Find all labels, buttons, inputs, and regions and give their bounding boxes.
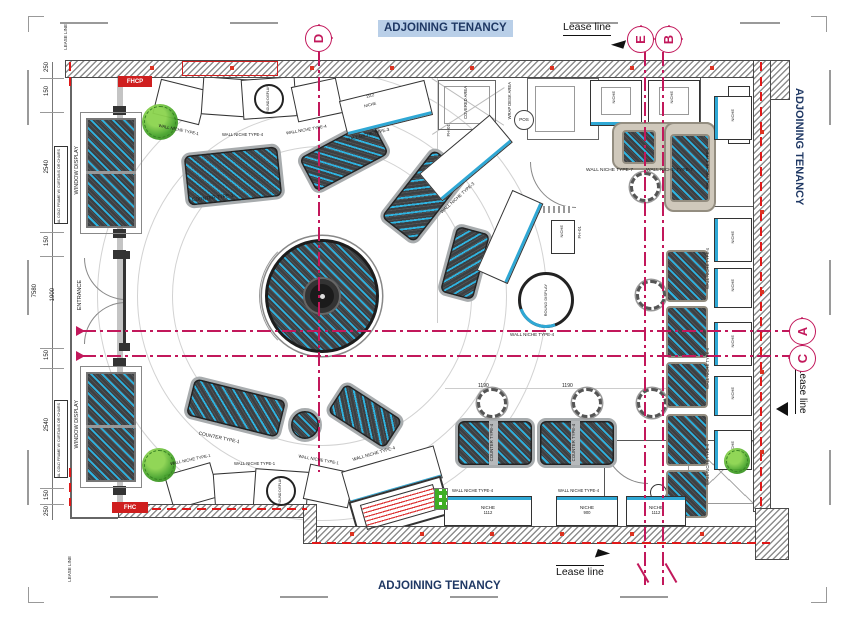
pos-circle: POS: [514, 110, 534, 130]
corner-mark: [826, 587, 827, 603]
niche-label: NICHE: [731, 231, 735, 243]
covered-area-label: COVERED AREA: [464, 86, 469, 119]
table-label: COUNTER TYPE-4: [490, 424, 495, 461]
grid-line-e: [644, 52, 646, 585]
wall-corner-block: [755, 508, 789, 560]
dim-entrance: 1900: [50, 288, 57, 301]
grid-line-c: [82, 355, 790, 357]
dim: 2540: [44, 160, 51, 173]
leader-arrow: [776, 402, 788, 416]
teal-panel: [666, 414, 708, 466]
entrance-door-arc: [84, 258, 126, 300]
round-display-niche: ROUND DISPLAY: [254, 84, 284, 114]
niche-label: NICHE: [670, 91, 674, 103]
adjoining-tenancy-bottom: ADJOINING TENANCY: [378, 580, 501, 593]
corner-mark: [826, 16, 827, 32]
tag-fh01: FH-01: [447, 124, 452, 137]
niche-caption: WALL NICHE TYPE-4: [706, 444, 711, 485]
niche-caption: WALL NICHE TYPE-4: [706, 348, 711, 389]
tenancy-boundary-dashes: [829, 70, 831, 550]
niche-label: NICHE: [560, 225, 564, 237]
metal-frame-note: METAL COLD FRAME W/ CURTAINS OR CHAIRS: [58, 403, 62, 478]
niche-caption: WALL NICHE TYPE-7: [646, 168, 693, 173]
dim: 1112: [652, 511, 661, 516]
wall-niche: NICHE: [714, 218, 752, 262]
leader-arrow: [611, 36, 626, 49]
round-display-label: ROUND DISPLAY: [267, 86, 271, 113]
corner-mark: [28, 602, 44, 603]
dim: 250: [44, 62, 51, 72]
corner-mark: [28, 587, 29, 603]
corner-mark: [811, 16, 827, 17]
metal-frame-note: METAL COLD FRAME W/ CURTAINS OR CHAIRS: [58, 149, 62, 224]
dim: 1190: [478, 384, 489, 390]
corner-mark: [28, 16, 44, 17]
wall-niche: NICHE 1112: [444, 496, 532, 526]
niche-caption: WALL NICHE TYPE-4: [706, 248, 711, 289]
wall-right: [753, 60, 771, 512]
niche-caption: WALL NICHE TYPE-1: [234, 462, 275, 467]
leader-arrow: [595, 549, 610, 562]
niche-label: NICHE: [731, 335, 735, 347]
center-display-pivot: [320, 294, 325, 299]
lease-line-bottom: Lease line: [556, 565, 604, 579]
fhc-marker: FHC: [112, 502, 148, 513]
round-stool-fixture: [288, 408, 322, 442]
grid-bubble-a: A: [789, 318, 816, 345]
round-display-label: ROUND DISPLAY: [279, 478, 283, 505]
entrance-label: ENTRANCE: [77, 280, 83, 310]
wall-niche: NICHE: [648, 80, 700, 126]
dim: 1190: [562, 384, 573, 390]
fhcp-marker: FHCP: [118, 76, 152, 87]
storefront-red-dash: [69, 468, 71, 506]
wrap-desk-label: WRAP DESK AREA: [508, 82, 513, 119]
niche-label: NICHE: [612, 91, 616, 103]
metal-frame-note-box: METAL COLD FRAME W/ CURTAINS OR CHAIRS: [54, 400, 68, 478]
teal-panel: [666, 250, 708, 302]
niche-caption: WALL NICHE TYPE-4: [222, 133, 263, 138]
tenancy-boundary-dashes: [27, 70, 29, 550]
niche-caption: WALL NICHE TYPE-4: [510, 333, 554, 338]
wall-red-dash: [760, 62, 762, 508]
lease-line-top-left: LEASE LINE: [64, 24, 69, 50]
teal-panel: [666, 362, 708, 408]
grid-bubble-d: D: [305, 25, 332, 52]
lease-line-bottom-left: LEASE LINE: [68, 556, 73, 582]
wall-top: [65, 60, 772, 78]
grid-bubble-b: B: [655, 26, 682, 53]
grid-arrow: [76, 326, 85, 336]
wall-niche: NICHE: [714, 322, 752, 366]
metal-frame-note-box: METAL COLD FRAME W/ CURTAINS OR CHAIRS: [54, 146, 68, 224]
tenancy-boundary-dashes: [110, 596, 740, 598]
tag-fh01: FH-01: [578, 226, 583, 239]
corner-mark: [811, 602, 827, 603]
teal-panel: [666, 306, 708, 358]
lease-line-right: Lease line: [795, 368, 808, 414]
grid-bubble-c: C: [789, 345, 816, 372]
grid-line-d: [318, 52, 320, 472]
planter: [434, 488, 448, 510]
wall-niche: NICHE: [714, 376, 752, 416]
table-label: COUNTER TYPE-4: [572, 424, 577, 461]
wall-niche: NICHE 1112: [626, 496, 686, 526]
wrap-desk-counter: [535, 86, 575, 132]
grid-line-b: [662, 52, 664, 585]
corner-mark: [28, 16, 29, 32]
wall-niche: NICHE: [714, 96, 752, 140]
pos-label: POS: [519, 118, 529, 123]
dim: 150: [44, 236, 51, 246]
storefront-line: [70, 517, 118, 519]
niche-label: NICHE: [731, 109, 735, 121]
wall-red-dash: [312, 542, 770, 544]
teal-panel: [622, 130, 656, 164]
floor-plan-sheet: ADJOINING TENANCY ADJOINING TENANCY ADJO…: [0, 0, 855, 620]
niche-caption: WALL NICHE TYPE-7: [586, 168, 633, 173]
wall-niche: NICHE: [590, 80, 642, 126]
wall-niche: NICHE: [714, 268, 752, 308]
dim: 2540: [44, 418, 51, 431]
plant: [724, 448, 750, 474]
niche-caption: WALL NICHE TYPE-6: [706, 148, 711, 189]
niche-caption: WALL NICHE TYPE-4: [558, 489, 599, 494]
dim: 150: [44, 86, 51, 96]
niche-caption: WALL NICHE TYPE-4: [452, 489, 493, 494]
center-round-display: [265, 239, 379, 353]
grid-bubble-e: E: [627, 26, 654, 53]
dim: 900: [584, 511, 591, 516]
adjoining-tenancy-right: ADJOINING TENANCY: [793, 88, 805, 205]
dim-overall: 7580: [32, 284, 39, 297]
adjoining-tenancy-top: ADJOINING TENANCY: [378, 20, 513, 37]
niche-label: NICHE: [731, 279, 735, 291]
entrance-door-arc: [84, 302, 126, 344]
wall-niche: NICHE: [551, 220, 575, 254]
wall-red-dash: [122, 508, 307, 510]
niche-label: NICHE: [731, 387, 735, 399]
wall-corner-block: [770, 60, 790, 100]
storefront-line: [70, 60, 72, 518]
dim: 150: [44, 350, 51, 360]
round-table: [572, 388, 602, 418]
dim: 1112: [484, 511, 493, 516]
round-display-niche: ROUND DISPLAY: [266, 476, 296, 506]
lease-line-top: Lease line: [563, 22, 611, 36]
window-display-label: WINDOW DISPLAY: [74, 146, 80, 195]
grid-arrow: [76, 351, 85, 361]
dim: 250: [44, 506, 51, 516]
round-table: [477, 388, 507, 418]
dim: 150: [44, 490, 51, 500]
grid-line-a: [82, 330, 790, 332]
wall-step: [303, 504, 317, 544]
wall-niche: NICHE 900: [556, 496, 618, 526]
window-display-label: WINDOW DISPLAY: [74, 400, 80, 449]
red-wall-frame: [182, 61, 278, 76]
storefront-red-dash: [69, 62, 71, 92]
